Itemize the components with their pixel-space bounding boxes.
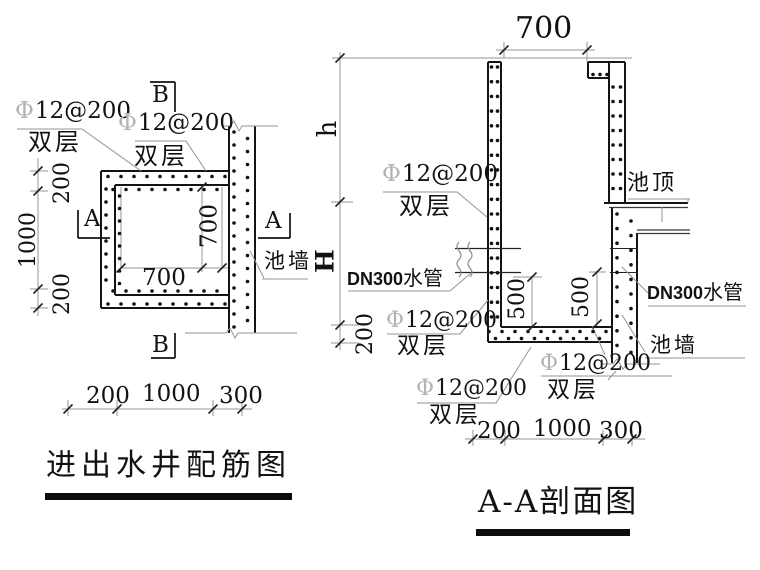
plan-dim-left-mid: 1000 <box>18 212 40 268</box>
plan-rebar-layer-1: 双层 <box>28 130 82 154</box>
section-mark-b-top: B <box>152 84 169 107</box>
section-roof-slab-lines <box>609 208 690 234</box>
pipe-code: DN300 <box>647 283 703 303</box>
section-dim-bottom-2: 1000 <box>533 418 592 441</box>
plan-dim-left-top: 200 <box>52 162 74 204</box>
section-dim-bottom-1: 200 <box>477 420 521 443</box>
rebar-spec: 12@200 <box>405 308 497 333</box>
section-rebar-label-2: Φ12@200 <box>386 310 497 332</box>
pipe-lines <box>455 249 638 273</box>
pipe-break-curves <box>457 242 472 277</box>
pipe-code: DN300 <box>347 269 403 289</box>
plan-dim-left-bottom: 200 <box>52 273 74 315</box>
section-rebar-layer-2: 双层 <box>397 335 449 358</box>
section-rebar-layer-4: 双层 <box>547 379 599 402</box>
rebar-grade-icon: Φ <box>382 161 402 187</box>
section-title-underline <box>476 529 630 536</box>
rebar-grade-icon: Φ <box>540 351 559 376</box>
section-rebar-layer-3: 双层 <box>429 404 481 427</box>
section-mark-a-right: A <box>265 210 282 233</box>
cad-drawing-canvas: Φ12@200 双层 Φ12@200 双层 B B A A 200 1000 2… <box>0 0 760 570</box>
plan-dim-opening-width: 700 <box>142 267 186 290</box>
section-dim-base: 200 <box>355 313 377 355</box>
section-rebar-label-3: Φ12@200 <box>416 378 527 400</box>
section-pipe-label-left: DN300水管 <box>347 268 443 288</box>
section-dim-top: 700 <box>515 14 572 44</box>
section-dim-500-left: 500 <box>507 278 529 320</box>
pipe-text: 水管 <box>403 266 443 290</box>
rebar-spec: 12@200 <box>559 351 651 376</box>
section-title: A-A剖面图 <box>478 487 638 518</box>
section-pipe-label-right: DN300水管 <box>647 282 743 302</box>
section-mark-a-left: A <box>84 208 101 231</box>
plan-wall-label: 池墙 <box>264 251 312 272</box>
plan-rebar-label-2: Φ12@200 <box>118 112 234 135</box>
section-dim-H: H <box>313 249 338 273</box>
section-wall-label: 池墙 <box>650 335 698 356</box>
rebar-spec: 12@200 <box>35 98 131 124</box>
rebar-grade-icon: Φ <box>118 110 138 136</box>
plan-dim-bottom-2: 1000 <box>142 383 201 406</box>
rebar-spec: 12@200 <box>138 110 234 136</box>
section-dim-500-right: 500 <box>571 276 593 318</box>
section-dim-h: h <box>315 121 341 138</box>
section-roof-label: 池顶 <box>627 173 677 195</box>
plan-title: 进出水井配筋图 <box>46 451 291 481</box>
rebar-grade-icon: Φ <box>386 308 405 333</box>
rebar-spec: 12@200 <box>402 161 498 187</box>
plan-dim-bottom-3: 300 <box>219 385 263 408</box>
rebar-spec: 12@200 <box>435 376 527 401</box>
plan-rebar-label-1: Φ12@200 <box>15 100 131 123</box>
plan-dim-bottom-1: 200 <box>86 385 130 408</box>
plan-title-underline <box>45 493 292 500</box>
plan-rebar-layer-2: 双层 <box>134 144 188 168</box>
section-dim-bottom-3: 300 <box>599 420 643 443</box>
rebar-dots <box>104 65 633 354</box>
rebar-grade-icon: Φ <box>15 98 35 124</box>
section-rebar-layer-1: 双层 <box>399 194 453 218</box>
section-rebar-label-4: Φ12@200 <box>540 353 651 375</box>
section-rebar-label-1: Φ12@200 <box>382 163 498 186</box>
rebar-grade-icon: Φ <box>416 376 435 401</box>
section-mark-b-bottom: B <box>152 334 169 357</box>
pipe-text: 水管 <box>703 280 743 304</box>
plan-dim-opening-height: 700 <box>199 204 222 248</box>
